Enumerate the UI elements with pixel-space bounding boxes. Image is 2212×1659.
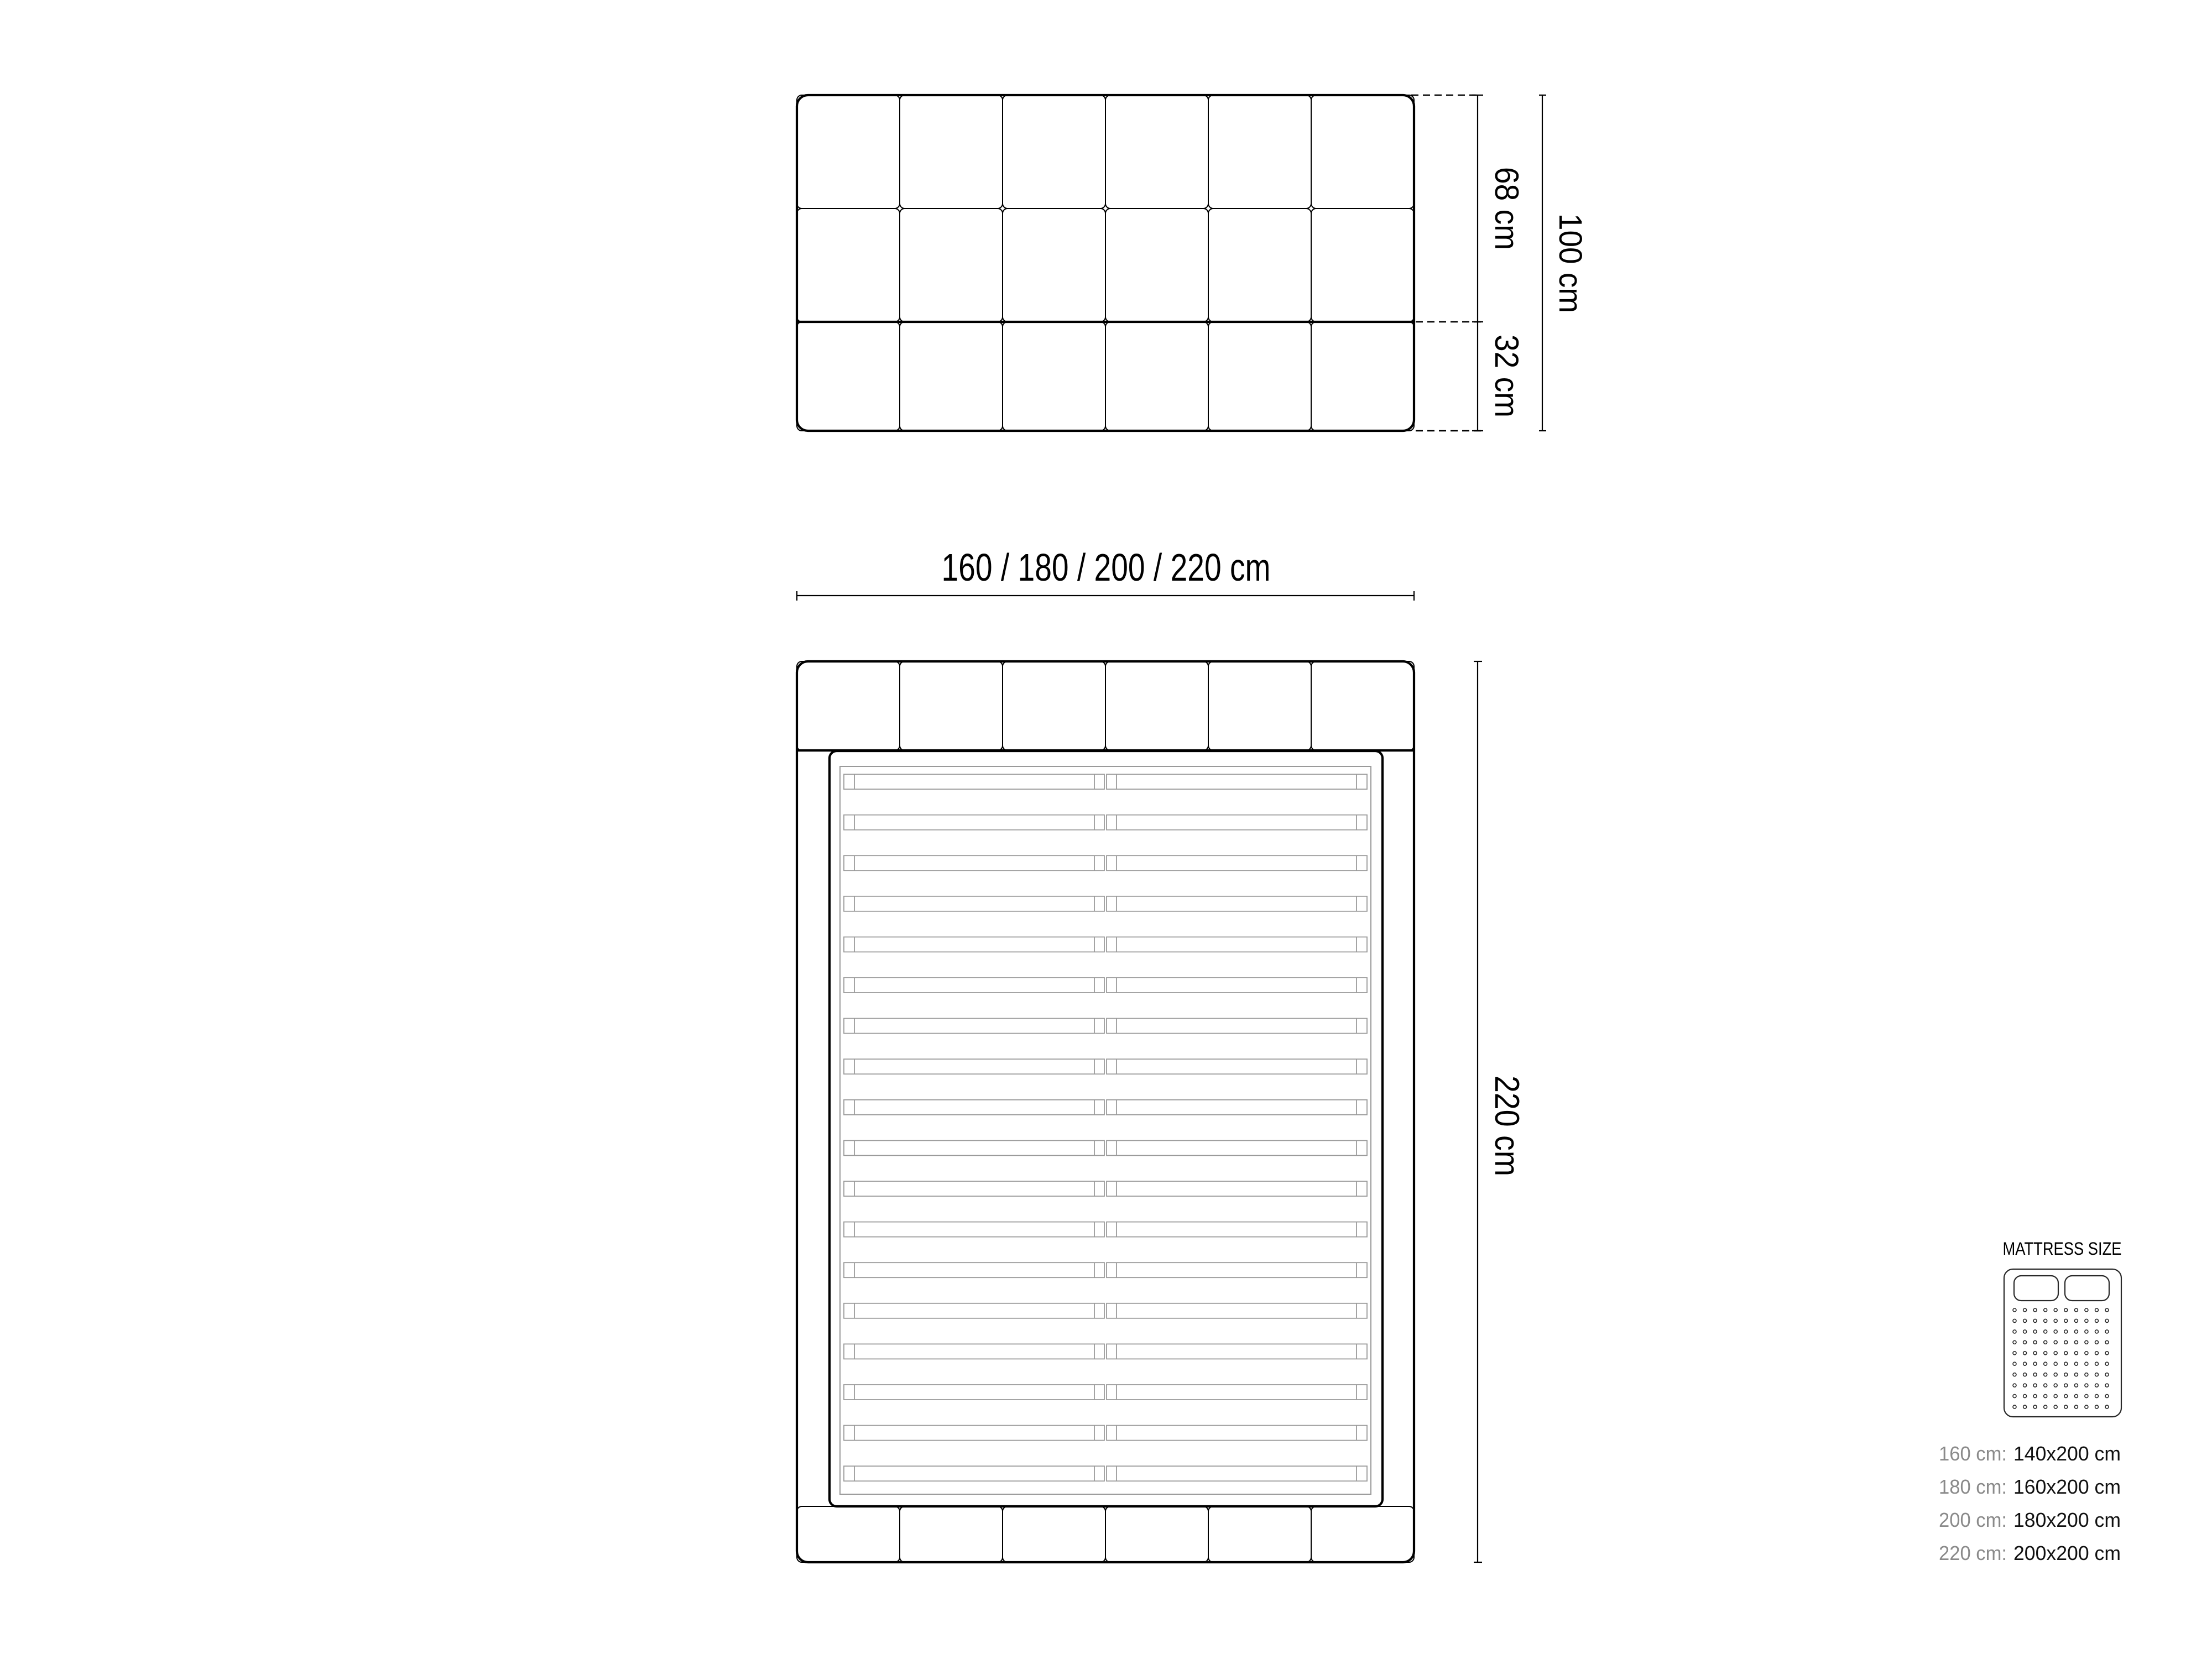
svg-text:68 cm: 68 cm	[1488, 167, 1525, 250]
svg-text:140x200 cm: 140x200 cm	[2013, 1442, 2121, 1465]
svg-text:100 cm: 100 cm	[1552, 213, 1588, 313]
svg-text:160 / 180 / 200 / 220 cm: 160 / 180 / 200 / 220 cm	[942, 546, 1271, 589]
svg-text:220 cm:: 220 cm:	[1939, 1542, 2007, 1564]
svg-text:180 cm:: 180 cm:	[1939, 1475, 2007, 1498]
svg-text:MATTRESS SIZE: MATTRESS SIZE	[2003, 1239, 2122, 1259]
svg-text:200x200 cm: 200x200 cm	[2013, 1542, 2121, 1564]
svg-text:160x200 cm: 160x200 cm	[2013, 1475, 2121, 1498]
svg-text:180x200 cm: 180x200 cm	[2013, 1509, 2121, 1531]
svg-text:160 cm:: 160 cm:	[1939, 1442, 2007, 1465]
svg-text:200 cm:: 200 cm:	[1939, 1509, 2007, 1531]
svg-text:220 cm: 220 cm	[1488, 1076, 1526, 1176]
svg-text:32 cm: 32 cm	[1488, 335, 1525, 418]
